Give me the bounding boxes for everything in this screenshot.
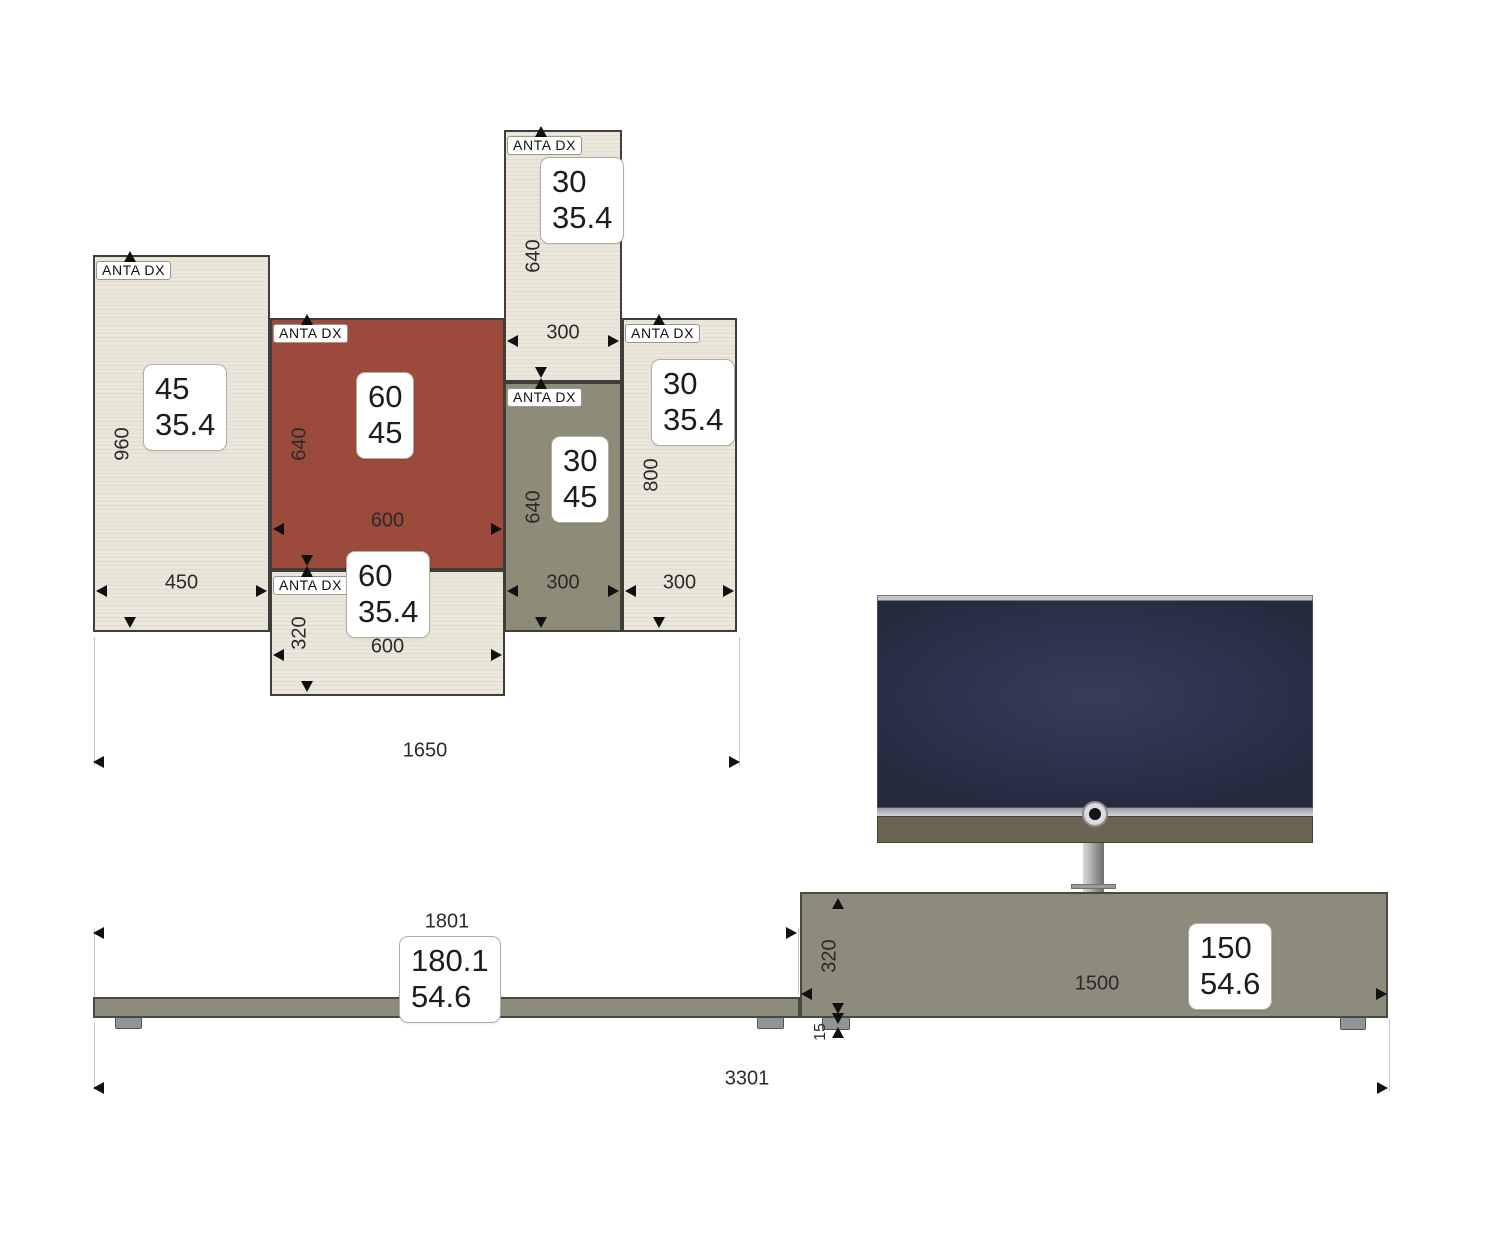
dim-arrow-up-icon [301,314,313,325]
dim-arrow-left-icon [93,927,104,939]
dim-arrow-left-icon [507,585,518,597]
cabinet-width-dim: 1500 [1075,973,1120,996]
dim-arrow-up-icon [124,251,136,262]
extension-line [94,637,95,766]
dim-arrow-down-icon [535,367,547,378]
panel-size-depth: 35.4 [552,200,612,236]
dim-arrow-up-icon [832,1027,844,1038]
dim-arrow-down-icon [124,617,136,628]
cabinet-foot [1340,1017,1366,1030]
bench-size-tag[interactable]: 180.1 54.6 [399,936,501,1023]
door-tag-label: ANTA DX [273,576,348,595]
dim-arrow-left-icon [625,585,636,597]
panel-size-width: 60 [358,558,418,594]
dim-arrow-left-icon [273,649,284,661]
panel-width-dim: 600 [371,510,404,533]
panel-size-width: 30 [563,443,597,479]
dim-arrow-left-icon [507,335,518,347]
cabinet-size-tag[interactable]: 150 54.6 [1188,923,1272,1010]
dim-arrow-left-icon [96,585,107,597]
panel-width-dim: 300 [663,572,696,595]
door-tag-label: ANTA DX [96,261,171,280]
extension-line [739,637,740,766]
dim-arrow-down-icon [301,681,313,692]
panel-size-depth: 45 [563,479,597,515]
dim-arrow-right-icon [491,649,502,661]
dim-arrow-right-icon [1376,988,1387,1000]
panel-height-dim: 640 [523,239,546,272]
tv-camera-lens-center [1089,808,1101,820]
bench-size-width: 180.1 [411,943,489,979]
bench-width-dim: 1801 [425,911,470,934]
tv-stand-flange [1071,884,1116,889]
dim-arrow-right-icon [608,585,619,597]
dim-arrow-right-icon [491,523,502,535]
panel-size-tag[interactable]: 60 45 [356,372,414,459]
bench-foot [115,1017,142,1029]
dim-arrow-left-icon [273,523,284,535]
dim-arrow-right-icon [1377,1082,1388,1094]
panel-height-dim: 640 [523,490,546,523]
cabinet-size-width: 150 [1200,930,1260,966]
panel-height-dim: 800 [641,458,664,491]
dim-arrow-down-icon [653,617,665,628]
dim-arrow-right-icon [786,927,797,939]
extension-line [1389,1020,1390,1092]
upper-total-width-dim: 1650 [403,740,448,763]
cabinet-foot-height-dim: 15 [812,1023,830,1041]
dim-arrow-up-icon [653,314,665,325]
panel-size-tag[interactable]: 30 35.4 [651,359,735,446]
panel-size-width: 60 [368,379,402,415]
panel-size-depth: 35.4 [358,594,418,630]
panel-size-depth: 35.4 [663,402,723,438]
extension-line [798,928,799,994]
dim-arrow-left-icon [801,988,812,1000]
tv-screen[interactable] [877,601,1313,807]
panel-height-dim: 320 [289,616,312,649]
panel-size-tag[interactable]: 30 35.4 [540,157,624,244]
door-tag-label: ANTA DX [507,388,582,407]
door-tag-label: ANTA DX [625,324,700,343]
panel-height-dim: 640 [289,427,312,460]
panel-size-tag[interactable]: 60 35.4 [346,551,430,638]
dim-arrow-down-icon [832,1013,844,1024]
panel-width-dim: 300 [546,572,579,595]
dim-arrow-right-icon [608,335,619,347]
dim-arrow-right-icon [256,585,267,597]
dim-arrow-left-icon [93,756,104,768]
extension-line [94,1023,95,1090]
dim-arrow-down-icon [535,617,547,628]
bench-foot [757,1017,784,1029]
furniture-elevation-canvas: ANTA DX 960 450 45 35.4 ANTA DX 640 600 … [0,0,1500,1250]
panel-height-dim: 960 [112,427,135,460]
dim-arrow-right-icon [729,756,740,768]
dim-arrow-right-icon [723,585,734,597]
panel-size-tag[interactable]: 45 35.4 [143,364,227,451]
panel-width-dim: 300 [546,322,579,345]
panel-width-dim: 600 [371,636,404,659]
dim-arrow-left-icon [93,1082,104,1094]
dim-arrow-up-icon [535,126,547,137]
dim-arrow-down-icon [301,555,313,566]
panel-size-depth: 45 [368,415,402,451]
door-tag-label: ANTA DX [273,324,348,343]
panel-size-depth: 35.4 [155,407,215,443]
bench-size-depth: 54.6 [411,979,489,1015]
dim-arrow-up-icon [301,566,313,577]
door-tag-label: ANTA DX [507,136,582,155]
panel-width-dim: 450 [165,572,198,595]
dim-arrow-up-icon [535,378,547,389]
panel-size-width: 30 [552,164,612,200]
cabinet-size-depth: 54.6 [1200,966,1260,1002]
panel-size-width: 45 [155,371,215,407]
cabinet-height-dim: 320 [819,939,842,972]
panel-size-tag[interactable]: 30 45 [551,436,609,523]
panel-size-width: 30 [663,366,723,402]
tv-cabinet[interactable] [800,892,1388,1018]
dim-arrow-up-icon [832,898,844,909]
overall-total-width-dim: 3301 [725,1068,770,1091]
